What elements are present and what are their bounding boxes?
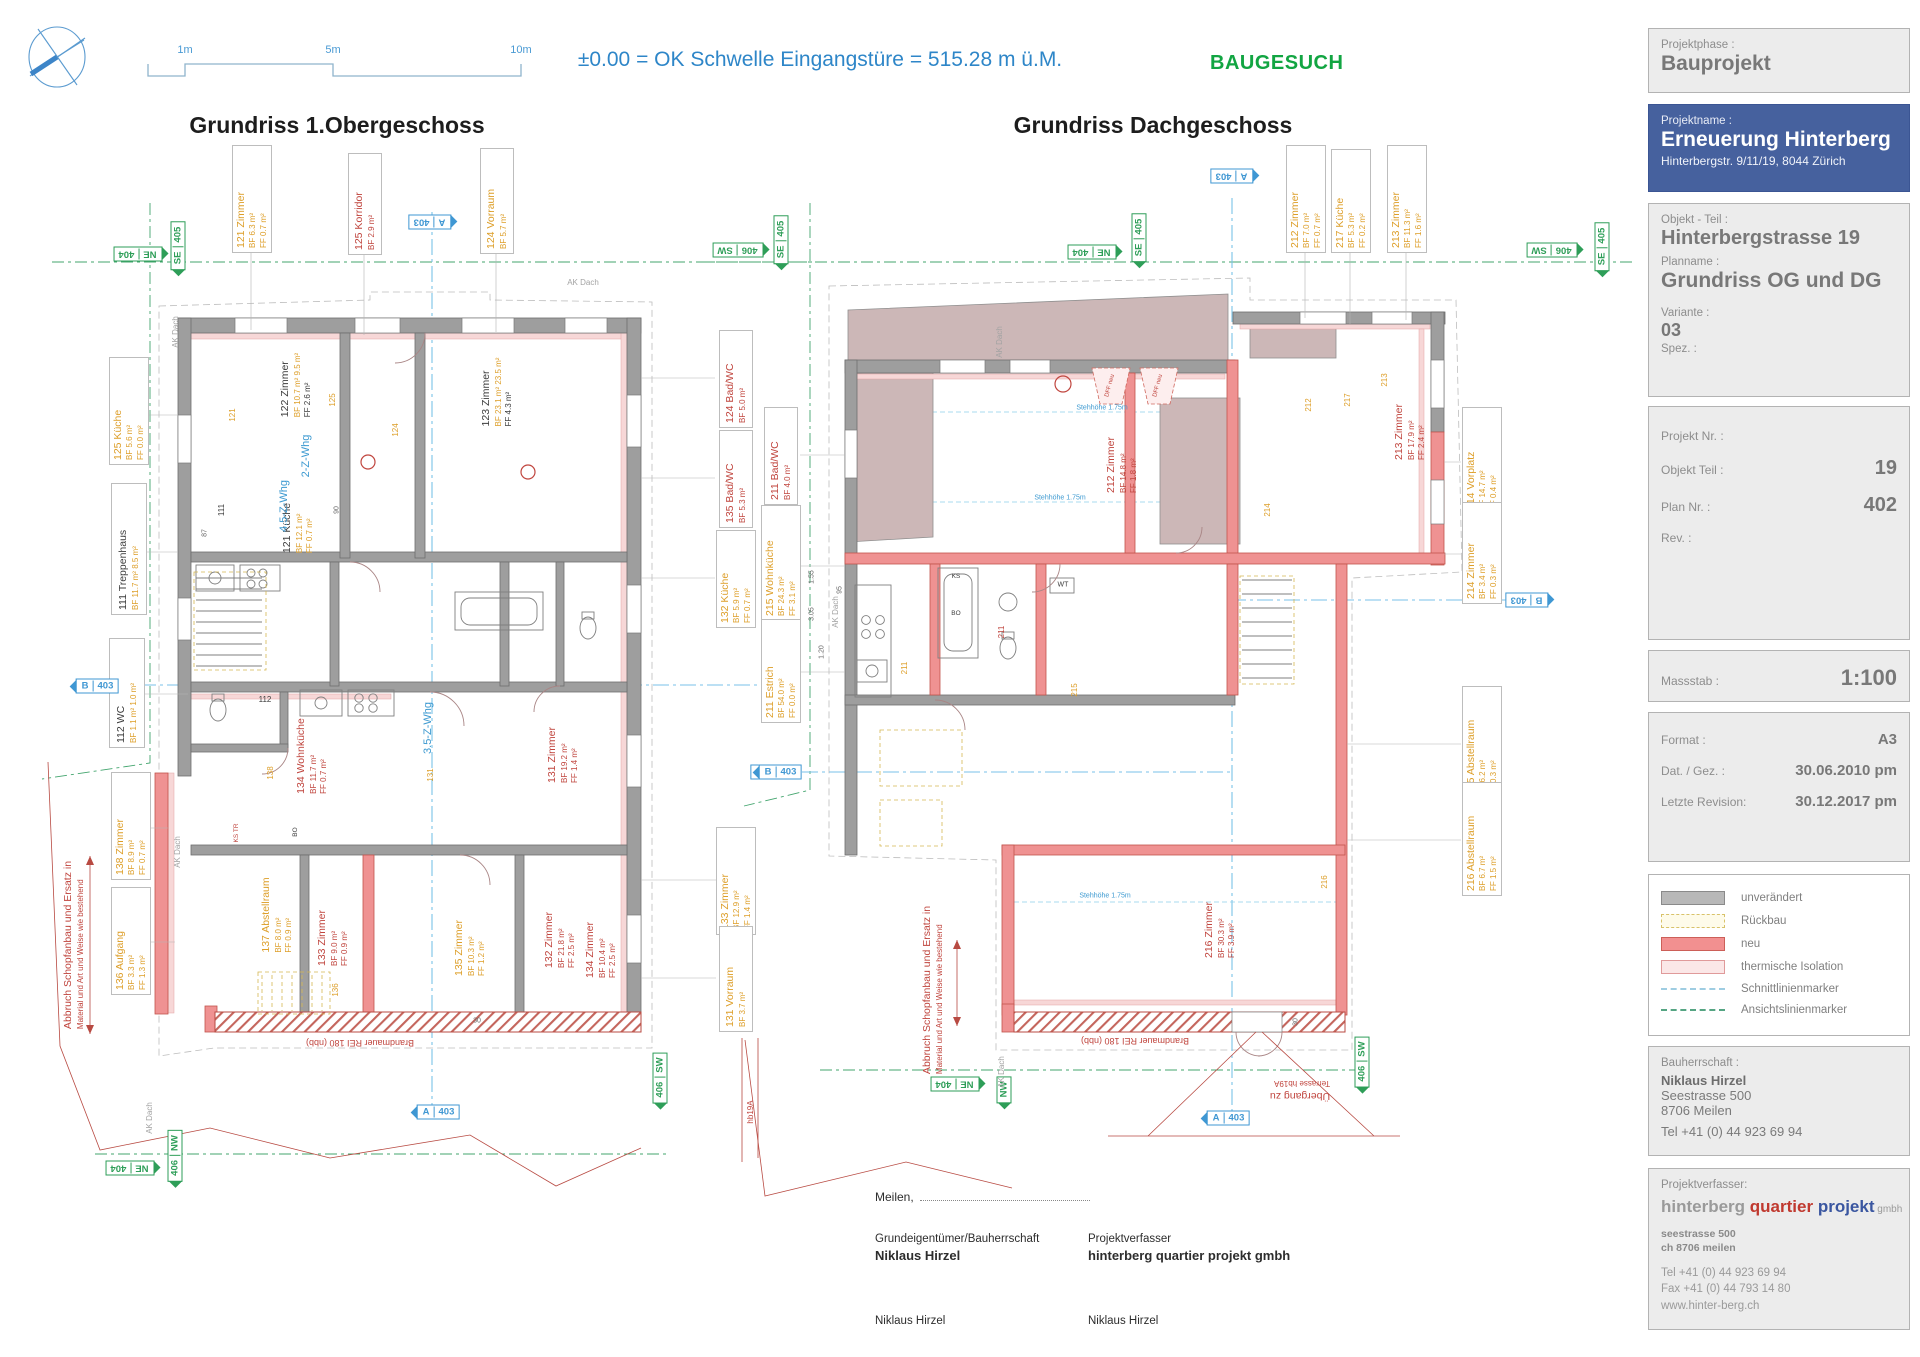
- room-label-box: 132 KücheBF 5.9 m²FF 0.7 m²: [716, 530, 756, 628]
- label-line: 214: [1263, 503, 1273, 516]
- plan-annotation: 137 AbstellraumBF 8.0 m²FF 0.9 m²: [260, 877, 294, 952]
- label-line: FF 1.5 m²: [1489, 856, 1499, 891]
- marker-code: B: [82, 681, 94, 692]
- label-line: 216: [1320, 875, 1330, 888]
- label-line: 3.5-Z-Whg: [421, 702, 435, 754]
- label-line: 3.05: [807, 607, 816, 621]
- label-line: 132 Zimmer: [543, 912, 557, 968]
- label-line: FF 3.1 m²: [788, 581, 798, 616]
- label-line: 217: [1343, 393, 1353, 406]
- label-line: BF 5.9 m²: [732, 588, 742, 623]
- marker-number: 404: [110, 1163, 126, 1174]
- label-line: BF 4.0 m²: [783, 465, 793, 500]
- planname-label: Planname :: [1661, 256, 1897, 268]
- marker-code: A: [1235, 171, 1247, 182]
- section-marker: 406SW: [1355, 1036, 1370, 1087]
- label-line: FF 0.0 m²: [136, 425, 146, 460]
- marker-code: SE: [776, 241, 787, 259]
- label-line: FF 2.6 m²: [303, 383, 313, 418]
- plan-annotation: 134 WohnkücheBF 11.7 m²FF 0.7 m²: [295, 718, 329, 794]
- label-line: AK Dach: [567, 278, 599, 288]
- label-line: FF 0.9 m²: [340, 931, 350, 966]
- room-label-box: 217 KücheBF 5.3 m²FF 0.2 m²: [1331, 149, 1371, 253]
- label-line: Stehhöhe 1.75m: [1034, 493, 1085, 502]
- label-line: 87: [200, 529, 209, 537]
- marker-number: 403: [439, 1107, 455, 1118]
- plan-annotation: BO: [292, 827, 300, 836]
- label-line: 121 Zimmer: [235, 192, 249, 248]
- legend-label: unverändert: [1741, 892, 1802, 904]
- marker-number: 403: [1511, 595, 1527, 606]
- label-line: FF 0.7 m²: [319, 759, 329, 794]
- tb-number-row: Objekt Teil :19: [1661, 457, 1897, 480]
- owner-signature-col: Grundeigentümer/Bauherrschaft Niklaus Hi…: [875, 1233, 1039, 1263]
- label-line: 135 Zimmer: [453, 920, 467, 976]
- plan-sheet: 1m 5m 10m ±0.00 = OK Schwelle Eingangstü…: [0, 0, 1920, 1357]
- projektphase-value: Bauprojekt: [1661, 52, 1897, 76]
- plan-annotation: Stehhöhe 1.75m: [1076, 403, 1127, 412]
- label-line: 216 Zimmer: [1203, 902, 1217, 958]
- label-line: BF 23.1 m² 23.5 m²: [493, 358, 503, 427]
- projektname-value: Erneuerung Hinterberg: [1661, 128, 1897, 152]
- section-marker: 406SW: [653, 1052, 668, 1103]
- label-line: Material und Art und Weise wie bestehend: [76, 879, 86, 1029]
- plan-annotation: 136: [331, 983, 341, 996]
- marker-code: 406: [1551, 245, 1572, 256]
- plan-annotation: 213 ZimmerBF 17.9 m²FF 2.4 m²: [1393, 404, 1427, 460]
- verfasser-street: seestrasse 500: [1661, 1227, 1897, 1241]
- tb-format-row: Dat. / Gez. :30.06.2010 pm: [1661, 762, 1897, 779]
- section-marker: B403: [1506, 593, 1549, 608]
- bauherr-street: Seestrasse 500: [1661, 1088, 1897, 1103]
- plan-annotation: KS: [952, 573, 961, 581]
- plan-annotation: 95: [835, 586, 844, 594]
- plan-annotation: 3.05: [807, 607, 816, 621]
- bauherr-name: Niklaus Hirzel: [1661, 1073, 1897, 1088]
- logo-part: quartier: [1745, 1197, 1813, 1216]
- plan-annotation: 131: [426, 768, 436, 781]
- section-marker: SE405: [774, 216, 789, 265]
- label-line: Brandmauer REI 180 (nbb): [306, 1036, 414, 1048]
- label-line: FF 1.3 m²: [138, 955, 148, 990]
- plan-annotation: 134 ZimmerBF 10.4 m²FF 2.5 m²: [584, 922, 618, 978]
- room-label-box: 124 VorraumBF 5.7 m²: [480, 148, 514, 254]
- tb-format-label: Letzte Revision:: [1661, 795, 1746, 809]
- label-line: BO: [292, 827, 300, 836]
- label-line: KS: [952, 573, 961, 581]
- legend-label: Ansichtslinienmarker: [1741, 1004, 1847, 1016]
- legend-item: Rückbau: [1661, 914, 1897, 928]
- label-line: WT: [1058, 580, 1069, 589]
- room-label-box: 135 Bad/WCBF 5.3 m²: [719, 430, 753, 528]
- label-line: 212: [1304, 398, 1314, 411]
- room-label-box: 121 ZimmerBF 6.3 m²FF 0.7 m²: [232, 145, 272, 253]
- label-line: 131 Zimmer: [546, 727, 560, 783]
- label-line: 125 Küche: [112, 410, 126, 460]
- legend-swatch-swatch-gray: [1661, 891, 1725, 905]
- label-line: 111: [217, 504, 227, 516]
- label-line: 133 Zimmer: [719, 874, 733, 930]
- marker-code: SE: [1597, 248, 1608, 266]
- label-line: BF 6.3 m²: [248, 213, 258, 248]
- plan-annotation: DFF neu: [1152, 374, 1166, 399]
- label-line: Abbruch Schopfanbau und Ersatz in: [62, 861, 76, 1029]
- legend-item: neu: [1661, 937, 1897, 951]
- label-line: 122 Zimmer: [279, 361, 293, 417]
- label-line: BF 12.9 m²: [732, 890, 742, 930]
- label-line: 135 Bad/WC: [724, 463, 738, 523]
- tb-format-label: Dat. / Gez. :: [1661, 764, 1725, 778]
- label-line: 2-Z-Whg: [299, 435, 313, 478]
- label-line: FF 1.4 m²: [570, 748, 580, 783]
- label-line: 112 WC: [115, 706, 129, 743]
- plan-annotation: 90: [332, 506, 341, 514]
- label-line: FF 1.2 m²: [477, 941, 487, 976]
- label-line: BF 10.3 m²: [466, 936, 476, 976]
- section-marker: B403: [759, 765, 802, 780]
- label-line: FF 2.5 m²: [567, 933, 577, 968]
- label-line: BF 12.1 m²: [294, 514, 304, 554]
- marker-code: 406: [655, 1077, 666, 1098]
- label-line: 125: [328, 393, 338, 406]
- label-line: BF 24.3 m²: [777, 576, 787, 616]
- marker-number: 405: [1134, 219, 1145, 235]
- plan-annotation: WT: [1058, 580, 1069, 589]
- projekt-address: Hinterbergstr. 9/11/19, 8044 Zürich: [1661, 154, 1897, 168]
- label-line: BF 1.1 m² 1.0 m²: [129, 683, 139, 743]
- label-line: 95: [835, 586, 844, 594]
- label-line: 131 Vorraum: [724, 967, 738, 1027]
- plan-annotation: Brandmauer REI 180 (nbb): [1081, 1034, 1189, 1046]
- plan-annotation: 112: [259, 695, 272, 705]
- signature-place: Meilen,: [875, 1190, 914, 1204]
- objekt-box: Objekt - Teil : Hinterbergstrasse 19 Pla…: [1648, 203, 1910, 397]
- plan-annotation: 122 ZimmerBF 10.7 m² 9.5 m²FF 2.6 m²: [279, 353, 313, 417]
- label-line: 216 Abstellraum: [1465, 816, 1479, 891]
- label-line: 123 Zimmer: [480, 370, 494, 426]
- plan-annotation: 132 ZimmerBF 21.8 m²FF 2.5 m²: [543, 912, 577, 968]
- section-marker: SE405: [1595, 223, 1610, 272]
- objekt-label: Objekt - Teil :: [1661, 214, 1897, 226]
- label-line: 30: [473, 1016, 481, 1025]
- label-line: BO: [951, 610, 960, 618]
- label-line: AK Dach: [995, 326, 1005, 358]
- tb-format-label: Format :: [1661, 733, 1706, 747]
- label-line: Brandmauer REI 180 (nbb): [1081, 1034, 1189, 1046]
- label-line: Material und Art und Weise wie bestehend: [935, 924, 945, 1074]
- plan-annotation: Abbruch Schopfanbau und Ersatz inMateria…: [62, 861, 86, 1029]
- room-label-box: 133 ZimmerBF 12.9 m²FF 1.4 m²: [716, 827, 756, 935]
- marker-code: B: [1530, 595, 1542, 606]
- plan-annotation: 212: [1304, 398, 1314, 411]
- label-line: 213 Zimmer: [1390, 192, 1404, 248]
- label-line: 112: [259, 695, 272, 705]
- label-line: 132 Küche: [719, 573, 733, 623]
- label-line: KS TR: [233, 823, 241, 842]
- marker-code: NE: [130, 1163, 148, 1174]
- label-line: 211: [997, 626, 1007, 639]
- legend-label: neu: [1741, 938, 1760, 950]
- tb-format-row: Format :A3: [1661, 731, 1897, 748]
- projektname-box: Projektname : Erneuerung Hinterberg Hint…: [1648, 104, 1910, 192]
- marker-number: NW: [170, 1135, 181, 1151]
- section-marker: A403: [417, 1105, 460, 1120]
- marker-code: A: [433, 217, 445, 228]
- marker-number: SW: [1357, 1041, 1368, 1056]
- label-line: BF 5.0 m²: [738, 388, 748, 423]
- plan-annotation: AK Dach: [567, 278, 599, 288]
- plan-annotation: 216: [1320, 875, 1330, 888]
- marker-code: A: [423, 1107, 435, 1118]
- owner-label: Grundeigentümer/Bauherrschaft: [875, 1233, 1039, 1245]
- label-line: FF 4.3 m²: [504, 392, 514, 427]
- label-line: AK Dach: [831, 596, 841, 628]
- label-line: Abbruch Schopfanbau und Ersatz in: [921, 906, 935, 1074]
- legend-item: thermische Isolation: [1661, 960, 1897, 974]
- tb-format-value: 30.12.2017 pm: [1795, 793, 1897, 810]
- label-line: BF 17.9 m²: [1406, 420, 1416, 460]
- label-line: BF 54.0 m²: [777, 678, 787, 718]
- label-line: 124 Bad/WC: [724, 363, 738, 423]
- label-line: FF 0.7 m²: [305, 518, 315, 553]
- section-marker: 406NW: [168, 1130, 183, 1182]
- label-line: FF 0.7 m²: [1313, 213, 1323, 248]
- plan-annotation: hb19A: [746, 1100, 756, 1123]
- label-line: 213: [1380, 373, 1390, 386]
- section-marker: B403: [76, 679, 119, 694]
- label-line: FF 0.7 m²: [743, 588, 753, 623]
- marker-code: 406: [1357, 1061, 1368, 1082]
- plan-annotation: 213: [1380, 373, 1390, 386]
- marker-number: 403: [98, 681, 114, 692]
- label-line: 211 Estrich: [764, 666, 778, 718]
- legend-item: unverändert: [1661, 891, 1897, 905]
- plan-labels-layer: 121 ZimmerBF 6.3 m²FF 0.7 m²125 Korridor…: [0, 0, 1920, 1357]
- legend-swatch-line-green: [1661, 1009, 1725, 1011]
- plan-annotation: 215: [1070, 683, 1080, 696]
- marker-number: SW: [655, 1057, 666, 1072]
- plan-annotation: AK Dach: [173, 836, 183, 868]
- legend-item: Ansichtslinienmarker: [1661, 1004, 1897, 1016]
- objekt-value: Hinterbergstrasse 19: [1661, 227, 1897, 250]
- marker-code: 406: [737, 245, 758, 256]
- plan-annotation: 1.55: [807, 570, 816, 584]
- label-line: FF 0.7 m²: [138, 840, 148, 875]
- label-line: 214 Zimmer: [1465, 543, 1479, 599]
- plan-annotation: Brandmauer REI 180 (nbb): [306, 1036, 414, 1048]
- label-line: BF 3.7 m²: [738, 992, 748, 1027]
- section-marker: NE404: [113, 247, 162, 262]
- label-line: 138: [266, 766, 276, 779]
- plan-annotation: 2-Z-Whg: [299, 435, 313, 478]
- label-line: 136 Aufgang: [114, 931, 128, 990]
- plan-annotation: BO: [951, 610, 960, 618]
- label-line: 111 Treppenhaus: [117, 530, 131, 610]
- plan-annotation: AK Dach: [145, 1102, 155, 1134]
- section-marker: 406SW: [1526, 243, 1577, 258]
- tb-number-label: Objekt Teil :: [1661, 463, 1723, 477]
- section-marker: NE404: [105, 1161, 154, 1176]
- label-line: BF 3.4 m²: [1478, 564, 1488, 599]
- plan-annotation: 214: [1263, 503, 1273, 516]
- projektphase-box: Projektphase : Bauprojekt: [1648, 28, 1910, 93]
- label-line: FF 0.0 m²: [788, 683, 798, 718]
- bauherrschaft-box: Bauherrschaft : Niklaus Hirzel Seestrass…: [1648, 1046, 1910, 1156]
- planname-value: Grundriss OG und DG: [1661, 269, 1897, 293]
- marker-number: 404: [118, 249, 134, 260]
- logo-part: gmbh: [1875, 1204, 1903, 1215]
- label-line: BF 11.7 m²: [308, 755, 318, 794]
- verfasser-logo: hinterberg quartier projekt gmbh: [1661, 1197, 1897, 1217]
- bauherrschaft-label: Bauherrschaft :: [1661, 1057, 1897, 1069]
- marker-number: SW: [717, 245, 732, 256]
- verfasser-city: ch 8706 meilen: [1661, 1241, 1897, 1255]
- room-label-box: 138 ZimmerBF 8.9 m²FF 0.7 m²: [111, 772, 151, 880]
- massstab-box: Massstab : 1:100: [1648, 650, 1910, 702]
- marker-number: 405: [1597, 228, 1608, 244]
- plan-annotation: 121: [228, 408, 238, 421]
- section-marker: A403: [409, 215, 452, 230]
- verfasser-fax: Fax +41 (0) 44 793 14 80: [1661, 1281, 1897, 1297]
- section-marker: NE404: [1067, 245, 1116, 260]
- tb-number-row: Projekt Nr. :: [1661, 429, 1897, 443]
- massstab-row: Massstab : 1:100: [1661, 665, 1897, 691]
- label-line: BF 10.4 m²: [597, 938, 607, 978]
- owner-sig-name: Niklaus Hirzel: [875, 1315, 945, 1327]
- room-label-box: 211 Bad/WCBF 4.0 m²: [764, 407, 798, 505]
- marker-code: NE: [1092, 247, 1110, 258]
- label-line: BF 10.7 m² 9.5 m²: [292, 353, 302, 417]
- plan-annotation: 211: [997, 626, 1007, 639]
- label-line: hb19A: [746, 1100, 756, 1123]
- tb-number-label: Projekt Nr. :: [1661, 429, 1724, 443]
- title-block: Projektphase : Bauprojekt Projektname : …: [1648, 0, 1912, 1357]
- room-label-box: 211 EstrichBF 54.0 m²FF 0.0 m²: [761, 619, 801, 723]
- label-line: 212 Zimmer: [1289, 192, 1303, 248]
- label-line: FF 0.9 m²: [284, 918, 294, 953]
- plan-annotation: 133 ZimmerBF 9.0 m²FF 0.9 m²: [316, 910, 350, 966]
- room-label-box: 131 VorraumBF 3.7 m²: [719, 926, 753, 1032]
- projektname-label: Projektname :: [1661, 115, 1897, 127]
- plan-annotation: 87: [200, 529, 209, 537]
- plan-annotation: 30: [473, 1016, 481, 1025]
- label-line: Terrasse hb19A: [1274, 1078, 1330, 1088]
- label-line: 124 Vorraum: [485, 189, 499, 249]
- label-line: BF 19.2 m²: [559, 743, 569, 783]
- variante-value: 03: [1661, 320, 1897, 341]
- label-line: BF 30.3 m²: [1216, 918, 1226, 958]
- label-line: 136: [331, 983, 341, 996]
- label-line: 90: [332, 506, 341, 514]
- plan-annotation: AK Dach: [995, 326, 1005, 358]
- legend-swatch-line-cyan: [1661, 988, 1725, 990]
- label-line: BF 2.9 m²: [367, 215, 377, 250]
- author-signature-col: Projektverfasser hinterberg quartier pro…: [1088, 1233, 1290, 1263]
- author-label: Projektverfasser: [1088, 1233, 1290, 1245]
- label-line: BF 14.8 m²: [1118, 453, 1128, 493]
- room-label-box: 111 TreppenhausBF 11.7 m² 8.5 m²: [111, 483, 147, 615]
- label-line: FF 0.3 m²: [1489, 564, 1499, 599]
- label-line: BF 5.7 m²: [499, 214, 509, 249]
- owner-name: Niklaus Hirzel: [875, 1248, 1039, 1263]
- author-name: hinterberg quartier projekt gmbh: [1088, 1248, 1290, 1263]
- marker-number: 403: [1216, 171, 1232, 182]
- label-line: 4.5-Z-Whg: [277, 480, 291, 532]
- logo-part: projekt: [1813, 1197, 1874, 1216]
- plan-annotation: 124: [391, 423, 401, 436]
- label-line: 30: [1291, 1018, 1300, 1026]
- section-marker: A403: [1207, 1111, 1250, 1126]
- room-label-box: 216 AbstellraumBF 6.7 m²FF 1.5 m²: [1462, 782, 1502, 896]
- marker-code: NE: [955, 1079, 973, 1090]
- marker-number: 403: [1229, 1113, 1245, 1124]
- tb-format-value: 30.06.2010 pm: [1795, 762, 1897, 779]
- section-marker: A403: [1211, 169, 1254, 184]
- label-line: BF 11.3 m²: [1403, 209, 1413, 248]
- label-line: AK Dach: [997, 1056, 1007, 1088]
- projektverfasser-box: Projektverfasser: hinterberg quartier pr…: [1648, 1168, 1910, 1330]
- label-line: 211: [900, 662, 910, 675]
- bauherr-city: 8706 Meilen: [1661, 1103, 1897, 1118]
- label-line: FF 1.6 m²: [1414, 213, 1424, 248]
- label-line: FF 1.8 m²: [1129, 458, 1139, 493]
- tb-number-value: 19: [1875, 457, 1897, 480]
- label-line: DFF neu: [1152, 374, 1166, 399]
- room-label-box: 214 VorplatzBF 14.7 m²FF 0.4 m²: [1462, 407, 1502, 515]
- label-line: DFF neu: [1104, 374, 1118, 399]
- legend-item: Schnittlinienmarker: [1661, 983, 1897, 995]
- label-line: BF 3.3 m²: [127, 955, 137, 990]
- section-marker: SE405: [171, 222, 186, 271]
- plan-annotation: Stehhöhe 1.75m: [1034, 493, 1085, 502]
- label-line: 121: [228, 408, 238, 421]
- tb-number-label: Rev. :: [1661, 531, 1691, 545]
- label-line: 134 Wohnküche: [295, 718, 309, 794]
- plan-annotation: 138: [266, 766, 276, 779]
- label-line: AK Dach: [145, 1102, 155, 1134]
- marker-number: 403: [781, 767, 797, 778]
- label-line: 124: [391, 423, 401, 436]
- verfasser-label: Projektverfasser:: [1661, 1179, 1897, 1191]
- bauherr-tel: Tel +41 (0) 44 923 69 94: [1661, 1124, 1897, 1139]
- plan-annotation: AK Dach: [831, 596, 841, 628]
- massstab-value: 1:100: [1841, 665, 1897, 691]
- label-line: BF 5.3 m²: [1347, 213, 1357, 248]
- room-label-box: 214 ZimmerBF 3.4 m²FF 0.3 m²: [1462, 502, 1502, 604]
- plan-annotation: Stehhöhe 1.75m: [1079, 891, 1130, 900]
- format-box: Format :A3Dat. / Gez. :30.06.2010 pmLetz…: [1648, 712, 1910, 862]
- marker-code: 406: [170, 1155, 181, 1176]
- legend-swatch-swatch-dashed: [1661, 914, 1725, 928]
- label-line: AK Dach: [173, 836, 183, 868]
- tb-format-row: Letzte Revision:30.12.2017 pm: [1661, 793, 1897, 810]
- label-line: FF 2.5 m²: [608, 943, 618, 978]
- plan-annotation: 4.5-Z-Whg: [277, 480, 291, 532]
- marker-code: SE: [1134, 239, 1145, 257]
- legend-label: thermische Isolation: [1741, 961, 1843, 973]
- room-label-box: 213 ZimmerBF 11.3 m²FF 1.6 m²: [1387, 145, 1427, 253]
- tb-number-row: Rev. :: [1661, 531, 1897, 545]
- label-line: AK Dach: [171, 316, 181, 348]
- label-line: BF 9.0 m²: [329, 931, 339, 966]
- plan-annotation: Übergang zuTerrasse hb19A: [1270, 1078, 1330, 1102]
- label-line: BF 6.7 m²: [1478, 856, 1488, 891]
- label-line: Stehhöhe 1.75m: [1076, 403, 1127, 412]
- label-line: FF 3.9 m²: [1227, 923, 1237, 958]
- verfasser-tel: Tel +41 (0) 44 923 69 94: [1661, 1265, 1897, 1281]
- plan-annotation: 216 ZimmerBF 30.3 m²FF 3.9 m²: [1203, 902, 1237, 958]
- plan-annotation: 3.5-Z-Whg: [421, 702, 435, 754]
